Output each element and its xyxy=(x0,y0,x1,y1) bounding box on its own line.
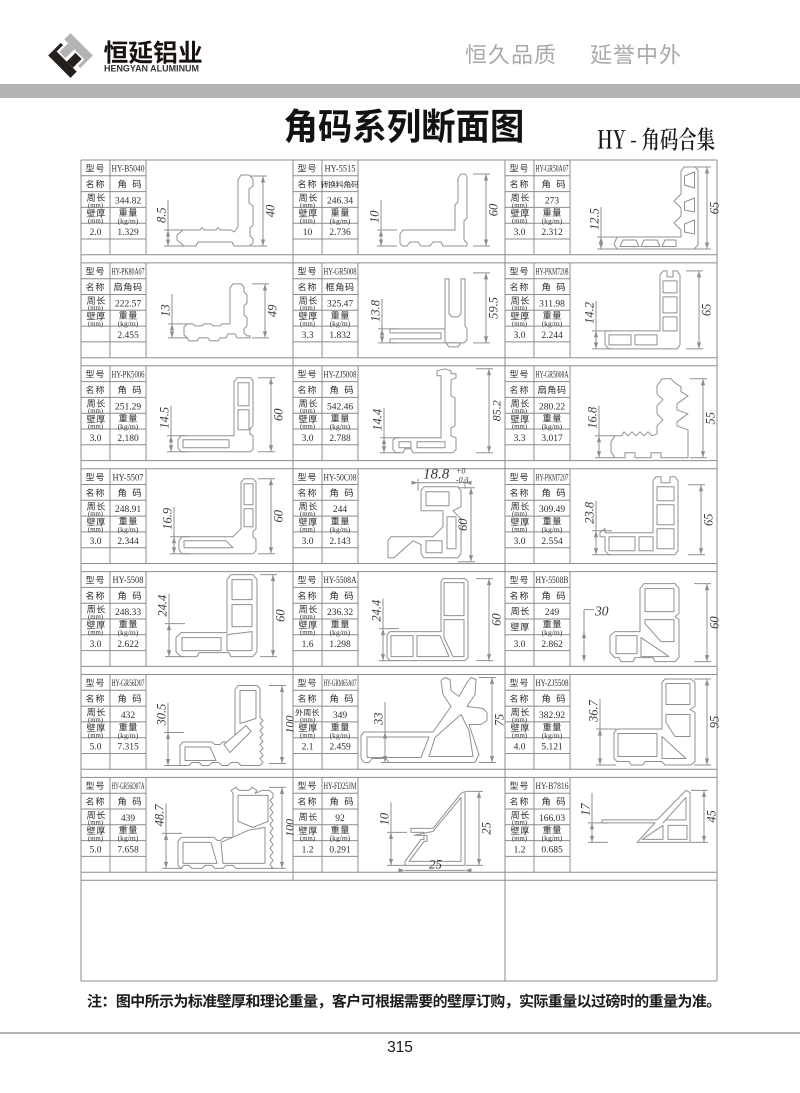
svg-text:49: 49 xyxy=(266,304,280,317)
svg-text:HY-PKM7207: HY-PKM7207 xyxy=(536,473,569,483)
svg-text:(mm): (mm) xyxy=(300,218,315,225)
svg-text:(mm): (mm) xyxy=(512,218,527,225)
svg-text:HY-PKM7208: HY-PKM7208 xyxy=(536,268,569,278)
svg-text:HY-GRM65A07: HY-GRM65A07 xyxy=(324,679,357,689)
svg-text:65: 65 xyxy=(700,304,714,317)
svg-text:65: 65 xyxy=(708,202,722,215)
svg-text:60: 60 xyxy=(490,613,504,626)
svg-text:5.0: 5.0 xyxy=(90,846,102,856)
svg-text:(kg/m): (kg/m) xyxy=(330,319,351,328)
svg-text:(mm): (mm) xyxy=(88,321,103,328)
svg-text:(mm): (mm) xyxy=(300,202,315,209)
svg-text:(kg/m): (kg/m) xyxy=(118,216,139,225)
svg-text:3.0: 3.0 xyxy=(514,640,526,650)
svg-text:60: 60 xyxy=(708,616,722,629)
svg-text:(kg/m): (kg/m) xyxy=(118,834,139,843)
svg-text:542.46: 542.46 xyxy=(327,402,353,412)
svg-text:25: 25 xyxy=(480,822,494,835)
svg-text:3.0: 3.0 xyxy=(90,640,102,650)
svg-text:7.315: 7.315 xyxy=(117,743,139,753)
svg-text:(kg/m): (kg/m) xyxy=(330,422,351,431)
svg-text:23.8: 23.8 xyxy=(583,501,597,524)
svg-text:3.017: 3.017 xyxy=(541,434,563,444)
svg-text:36.7: 36.7 xyxy=(587,699,601,723)
svg-text:(mm): (mm) xyxy=(88,717,103,724)
svg-text:45: 45 xyxy=(705,810,719,823)
svg-text:246.34: 246.34 xyxy=(327,197,353,207)
svg-text:2.344: 2.344 xyxy=(117,537,139,547)
svg-text:166.03: 166.03 xyxy=(539,814,565,824)
svg-text:244: 244 xyxy=(333,505,348,515)
svg-text:2.622: 2.622 xyxy=(117,640,139,650)
svg-text:10: 10 xyxy=(378,812,392,825)
svg-text:344.82: 344.82 xyxy=(115,197,141,207)
svg-text:10: 10 xyxy=(303,228,313,238)
svg-text:(mm): (mm) xyxy=(300,732,315,739)
svg-text:(mm): (mm) xyxy=(512,835,527,842)
svg-text:(mm): (mm) xyxy=(512,321,527,328)
svg-text:30: 30 xyxy=(594,604,609,619)
svg-text:273: 273 xyxy=(545,197,560,207)
svg-text:2.459: 2.459 xyxy=(329,743,351,753)
svg-text:HY-ZJ5508: HY-ZJ5508 xyxy=(536,679,569,689)
svg-text:432: 432 xyxy=(121,711,136,721)
svg-text:(mm): (mm) xyxy=(300,511,315,518)
svg-text:10: 10 xyxy=(368,210,382,223)
svg-text:1.2: 1.2 xyxy=(302,846,314,856)
svg-text:(kg/m): (kg/m) xyxy=(542,525,563,534)
svg-text:(kg/m): (kg/m) xyxy=(118,319,139,328)
svg-text:(mm): (mm) xyxy=(88,614,103,621)
svg-text:13: 13 xyxy=(159,304,173,317)
svg-text:(mm): (mm) xyxy=(512,202,527,209)
svg-text:40: 40 xyxy=(264,204,278,217)
svg-text:60: 60 xyxy=(487,203,501,216)
svg-text:248.91: 248.91 xyxy=(115,505,141,515)
svg-text:(mm): (mm) xyxy=(512,527,527,534)
svg-text:60: 60 xyxy=(456,518,470,531)
svg-text:3.3: 3.3 xyxy=(514,434,526,444)
svg-text:+0: +0 xyxy=(456,467,465,476)
svg-text:(kg/m): (kg/m) xyxy=(542,628,563,637)
svg-text:3.0: 3.0 xyxy=(514,537,526,547)
svg-text:92: 92 xyxy=(335,814,345,824)
svg-text:16.9: 16.9 xyxy=(161,507,175,530)
svg-text:24.4: 24.4 xyxy=(370,600,384,622)
svg-text:HY-B7816: HY-B7816 xyxy=(536,782,569,792)
svg-text:(kg/m): (kg/m) xyxy=(330,216,351,225)
svg-text:75: 75 xyxy=(493,714,507,727)
svg-text:(kg/m): (kg/m) xyxy=(542,216,563,225)
svg-text:(kg/m): (kg/m) xyxy=(118,628,139,637)
svg-text:(kg/m): (kg/m) xyxy=(542,319,563,328)
svg-text:3.0: 3.0 xyxy=(514,331,526,341)
svg-text:(mm): (mm) xyxy=(88,408,103,415)
svg-text:59.5: 59.5 xyxy=(487,297,501,319)
svg-text:236.32: 236.32 xyxy=(327,608,353,618)
svg-text:251.29: 251.29 xyxy=(115,402,141,412)
svg-text:3.0: 3.0 xyxy=(90,537,102,547)
svg-text:222.57: 222.57 xyxy=(115,299,141,309)
svg-text:HY-PK80A07: HY-PK80A07 xyxy=(112,268,145,278)
svg-text:2.180: 2.180 xyxy=(117,434,139,444)
svg-text:2.244: 2.244 xyxy=(541,331,563,341)
svg-text:(kg/m): (kg/m) xyxy=(118,731,139,740)
svg-text:55: 55 xyxy=(704,412,718,425)
svg-text:(mm): (mm) xyxy=(88,820,103,827)
svg-text:14.4: 14.4 xyxy=(371,409,385,431)
svg-text:(kg/m): (kg/m) xyxy=(330,628,351,637)
svg-text:(mm): (mm) xyxy=(512,820,527,827)
svg-text:100: 100 xyxy=(283,819,297,837)
svg-text:(mm): (mm) xyxy=(512,732,527,739)
svg-text:60: 60 xyxy=(274,609,288,622)
svg-text:2.788: 2.788 xyxy=(329,434,351,444)
svg-text:(kg/m): (kg/m) xyxy=(542,731,563,740)
svg-text:48.7: 48.7 xyxy=(153,804,167,827)
svg-text:HY-GR50A07: HY-GR50A07 xyxy=(536,165,569,175)
svg-text:HY-GR5008A: HY-GR5008A xyxy=(536,370,569,380)
svg-text:(kg/m): (kg/m) xyxy=(330,834,351,843)
svg-text:249: 249 xyxy=(545,608,560,618)
svg-text:(mm): (mm) xyxy=(300,408,315,415)
svg-text:(mm): (mm) xyxy=(88,835,103,842)
svg-text:100: 100 xyxy=(283,716,297,734)
svg-text:13.8: 13.8 xyxy=(369,299,383,322)
svg-text:30.5: 30.5 xyxy=(155,704,169,727)
svg-text:HY-ZJ5008: HY-ZJ5008 xyxy=(324,370,357,380)
svg-text:(kg/m): (kg/m) xyxy=(330,525,351,534)
svg-text:HY-5508: HY-5508 xyxy=(113,576,144,586)
svg-text:(mm): (mm) xyxy=(300,630,315,637)
svg-text:85.2: 85.2 xyxy=(490,400,504,421)
svg-text:(mm): (mm) xyxy=(512,305,527,312)
svg-text:(mm): (mm) xyxy=(300,424,315,431)
svg-text:(mm): (mm) xyxy=(512,511,527,518)
svg-text:HY-5515: HY-5515 xyxy=(325,165,356,175)
svg-text:65: 65 xyxy=(702,513,716,526)
svg-text:33: 33 xyxy=(372,713,386,727)
svg-text:(mm): (mm) xyxy=(300,835,315,842)
svg-text:60: 60 xyxy=(272,408,286,421)
svg-text:(mm): (mm) xyxy=(88,202,103,209)
svg-text:2.312: 2.312 xyxy=(541,228,563,238)
svg-text:HY-5507: HY-5507 xyxy=(113,473,144,483)
svg-text:1.832: 1.832 xyxy=(329,331,351,341)
svg-text:(mm): (mm) xyxy=(300,305,315,312)
svg-text:309.49: 309.49 xyxy=(539,505,565,515)
svg-text:0.291: 0.291 xyxy=(329,846,351,856)
svg-text:248.33: 248.33 xyxy=(115,608,141,618)
svg-text:2.736: 2.736 xyxy=(329,228,351,238)
svg-text:280.22: 280.22 xyxy=(539,402,565,412)
svg-text:HY-5508B: HY-5508B xyxy=(536,576,569,586)
svg-text:HY-GR56D07: HY-GR56D07 xyxy=(112,679,145,689)
svg-text:(kg/m): (kg/m) xyxy=(542,834,563,843)
svg-text:(mm): (mm) xyxy=(512,408,527,415)
svg-text:(kg/m): (kg/m) xyxy=(542,422,563,431)
svg-text:14.2: 14.2 xyxy=(583,302,597,324)
svg-text:(mm): (mm) xyxy=(88,732,103,739)
svg-text:1.6: 1.6 xyxy=(302,640,314,650)
svg-text:3.0: 3.0 xyxy=(302,434,314,444)
svg-text:5.121: 5.121 xyxy=(541,743,563,753)
svg-text:0.685: 0.685 xyxy=(541,846,563,856)
svg-text:315: 315 xyxy=(387,1039,413,1056)
svg-text:14.5: 14.5 xyxy=(158,407,172,429)
svg-text:(kg/m): (kg/m) xyxy=(118,422,139,431)
svg-text:(mm): (mm) xyxy=(88,305,103,312)
svg-text:HY-GR56D07A: HY-GR56D07A xyxy=(112,782,145,792)
svg-text:(mm): (mm) xyxy=(88,527,103,534)
svg-text:(mm): (mm) xyxy=(300,614,315,621)
svg-text:8.5: 8.5 xyxy=(155,207,169,223)
svg-text:382.92: 382.92 xyxy=(539,711,565,721)
svg-text:60: 60 xyxy=(272,509,286,522)
svg-text:24.4: 24.4 xyxy=(156,595,170,617)
svg-text:(kg/m): (kg/m) xyxy=(118,525,139,534)
svg-text:2.143: 2.143 xyxy=(329,537,351,547)
svg-text:25: 25 xyxy=(429,856,443,871)
svg-text:(mm): (mm) xyxy=(88,218,103,225)
svg-text:3.0: 3.0 xyxy=(90,434,102,444)
svg-text:(mm): (mm) xyxy=(88,424,103,431)
svg-text:-0.3: -0.3 xyxy=(456,476,469,485)
svg-text:3.0: 3.0 xyxy=(514,228,526,238)
svg-text:HY-B5040: HY-B5040 xyxy=(112,165,145,175)
svg-text:3.3: 3.3 xyxy=(302,331,314,341)
svg-text:HENGYAN ALUMINUM: HENGYAN ALUMINUM xyxy=(104,64,199,74)
svg-text:HY-GR5008: HY-GR5008 xyxy=(324,268,357,278)
svg-text:311.98: 311.98 xyxy=(539,299,565,309)
svg-text:3.0: 3.0 xyxy=(302,537,314,547)
svg-text:HY-FD25JM: HY-FD25JM xyxy=(324,782,357,792)
svg-text:349: 349 xyxy=(333,711,348,721)
svg-text:95: 95 xyxy=(708,716,722,729)
svg-text:7.658: 7.658 xyxy=(117,846,139,856)
svg-text:2.455: 2.455 xyxy=(117,331,139,341)
svg-text:2.554: 2.554 xyxy=(541,537,563,547)
svg-text:(mm): (mm) xyxy=(512,717,527,724)
svg-text:12.5: 12.5 xyxy=(588,208,602,230)
svg-text:(kg/m): (kg/m) xyxy=(330,731,351,740)
svg-text:(mm): (mm) xyxy=(88,630,103,637)
svg-text:439: 439 xyxy=(121,814,136,824)
svg-text:(mm): (mm) xyxy=(88,511,103,518)
svg-text:(mm): (mm) xyxy=(300,527,315,534)
svg-text:1.329: 1.329 xyxy=(117,228,139,238)
svg-text:4.0: 4.0 xyxy=(514,743,526,753)
svg-text:2.1: 2.1 xyxy=(302,743,314,753)
svg-text:1.298: 1.298 xyxy=(329,640,351,650)
svg-text:2.862: 2.862 xyxy=(541,640,563,650)
svg-text:(mm): (mm) xyxy=(300,321,315,328)
svg-text:HY-5508A: HY-5508A xyxy=(324,576,357,586)
svg-text:(mm): (mm) xyxy=(512,424,527,431)
svg-text:HY-50C08: HY-50C08 xyxy=(324,473,357,483)
svg-text:18.8: 18.8 xyxy=(423,467,450,483)
svg-text:5.0: 5.0 xyxy=(90,743,102,753)
svg-text:17: 17 xyxy=(579,803,593,816)
svg-text:16.8: 16.8 xyxy=(586,406,600,429)
svg-text:(mm): (mm) xyxy=(300,717,315,724)
svg-text:HY-PK5006: HY-PK5006 xyxy=(112,370,145,380)
svg-text:1.2: 1.2 xyxy=(514,846,526,856)
svg-text:2.0: 2.0 xyxy=(90,228,102,238)
svg-text:325.47: 325.47 xyxy=(327,299,353,309)
